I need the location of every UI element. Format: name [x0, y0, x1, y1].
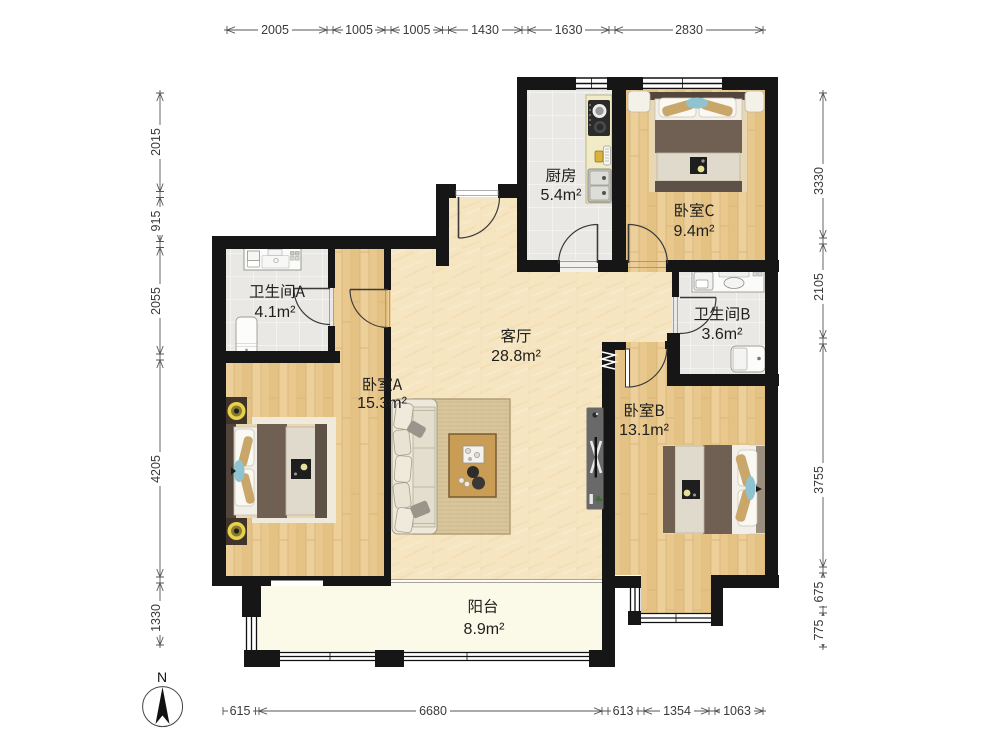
svg-text:15.3m²: 15.3m² — [357, 395, 407, 412]
svg-text:3755: 3755 — [812, 466, 826, 494]
svg-text:775: 775 — [812, 620, 826, 641]
svg-text:28.8m²: 28.8m² — [491, 348, 541, 365]
svg-text:675: 675 — [812, 582, 826, 603]
svg-text:3.6m²: 3.6m² — [702, 326, 744, 343]
svg-text:6680: 6680 — [419, 704, 447, 718]
svg-text:1063: 1063 — [723, 704, 751, 718]
svg-text:3330: 3330 — [812, 167, 826, 195]
svg-text:2105: 2105 — [812, 273, 826, 301]
svg-text:9.4m²: 9.4m² — [674, 223, 716, 240]
svg-text:N: N — [157, 669, 167, 685]
svg-text:2055: 2055 — [149, 287, 163, 315]
svg-text:615: 615 — [230, 704, 251, 718]
svg-text:2830: 2830 — [675, 23, 703, 37]
svg-text:4.1m²: 4.1m² — [255, 304, 297, 321]
svg-text:13.1m²: 13.1m² — [619, 422, 669, 439]
svg-text:1005: 1005 — [345, 23, 373, 37]
svg-text:2015: 2015 — [149, 128, 163, 156]
svg-text:1330: 1330 — [149, 604, 163, 632]
svg-text:1005: 1005 — [403, 23, 431, 37]
svg-text:613: 613 — [613, 704, 634, 718]
svg-text:2005: 2005 — [261, 23, 289, 37]
svg-text:5.4m²: 5.4m² — [541, 187, 583, 204]
svg-text:8.9m²: 8.9m² — [464, 621, 506, 638]
svg-text:1430: 1430 — [471, 23, 499, 37]
svg-text:915: 915 — [149, 211, 163, 232]
svg-text:1630: 1630 — [555, 23, 583, 37]
svg-text:4205: 4205 — [149, 455, 163, 483]
svg-text:1354: 1354 — [663, 704, 691, 718]
